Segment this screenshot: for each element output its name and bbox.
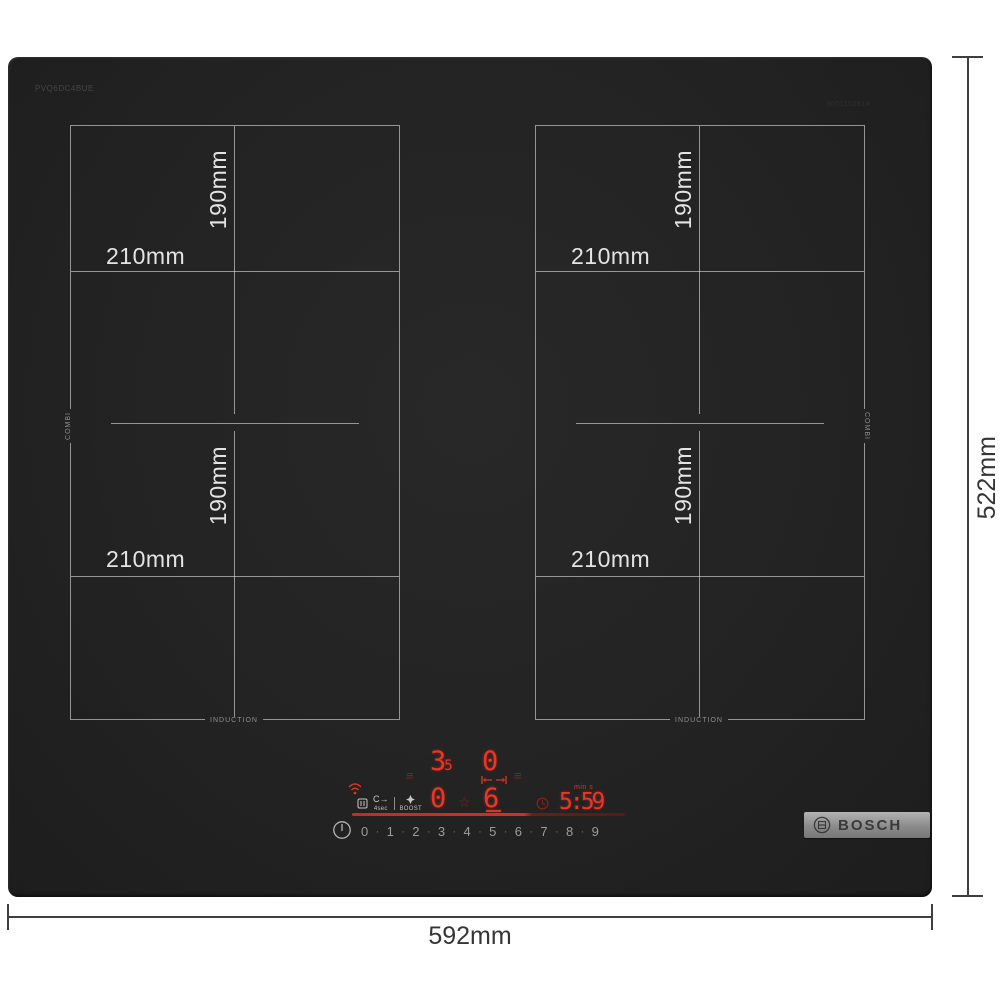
power-level-6: 6 <box>515 824 522 839</box>
panel-function-icons: C→ 4sec BOOST <box>357 795 422 812</box>
zone-divider-line <box>699 126 700 414</box>
induction-label: INDUCTION <box>205 717 263 724</box>
hob-surface: PVQ6DC4BUE 9001153814 210mm 190mm 210mm … <box>8 57 932 897</box>
power-level-separator: · <box>581 826 585 838</box>
power-level-2: 2 <box>412 824 419 839</box>
power-level-separator: · <box>529 826 533 838</box>
power-slider-bar <box>352 813 625 816</box>
led-digit: 3 <box>430 746 444 777</box>
power-level-8: 8 <box>566 824 573 839</box>
width-dimension-label: 592mm <box>8 922 932 951</box>
combi-label: COMBI <box>863 409 870 443</box>
product-dimension-diagram: PVQ6DC4BUE 9001153814 210mm 190mm 210mm … <box>0 0 1000 1000</box>
dimension-cap <box>952 56 983 58</box>
zone-width-label: 210mm <box>106 546 185 573</box>
cooking-zone-right: 210mm 190mm 210mm 190mm COMBI INDUCTION <box>535 125 865 720</box>
power-level-display-rear-right: 0 <box>482 748 496 775</box>
power-level-separator: · <box>478 826 482 838</box>
zone-middle-line <box>576 423 824 424</box>
hold-label: 4sec <box>374 806 388 812</box>
hold-function: C→ 4sec <box>373 795 389 812</box>
power-icon <box>332 820 352 840</box>
power-level-separator: · <box>376 826 380 838</box>
power-level-scale: 0·1·2·3·4·5·6·7·8·9 <box>361 824 599 839</box>
power-level-separator: · <box>452 826 456 838</box>
favourite-star-icon: ☆ <box>458 795 471 809</box>
menu-lines-icon: ≡ <box>514 769 521 782</box>
selected-zone-indicator <box>486 810 501 812</box>
zone-height-label: 190mm <box>205 150 232 229</box>
height-dimension-line <box>967 57 969 897</box>
power-level-3: 3 <box>438 824 445 839</box>
power-level-0: 0 <box>361 824 368 839</box>
menu-lines-icon: ≡ <box>406 769 413 782</box>
power-level-7: 7 <box>540 824 547 839</box>
zone-width-label: 210mm <box>106 243 185 270</box>
zone-width-line <box>536 576 864 577</box>
power-level-9: 9 <box>592 824 599 839</box>
hold-icon: C→ <box>373 795 389 804</box>
power-level-separator: · <box>504 826 508 838</box>
boost-label: BOOST <box>400 806 423 812</box>
zone-width-line <box>71 271 399 272</box>
pan-icon <box>357 798 368 809</box>
bosch-logo-icon <box>813 816 831 834</box>
wifi-icon <box>347 782 363 795</box>
icon-divider <box>394 797 395 810</box>
zone-width-line <box>536 271 864 272</box>
part-number-text: 9001153814 <box>827 101 870 108</box>
bosch-badge: BOSCH <box>804 812 930 838</box>
combi-label: COMBI <box>65 409 72 443</box>
timer-display: 5:59 <box>559 791 602 814</box>
zone-divider-line <box>234 126 235 414</box>
boost-icon <box>406 795 415 804</box>
power-level-1: 1 <box>387 824 394 839</box>
zone-middle-line <box>111 423 359 424</box>
zone-width-line <box>71 576 399 577</box>
clock-icon <box>536 797 549 810</box>
zone-height-label: 190mm <box>205 446 232 525</box>
dimension-cap <box>952 895 983 897</box>
induction-label: INDUCTION <box>670 717 728 724</box>
power-level-separator: · <box>401 826 405 838</box>
width-dimension-line <box>8 916 932 918</box>
power-level-display-bridge: 6 <box>483 785 497 812</box>
led-small-digit: 5 <box>444 758 450 774</box>
cooking-zone-left: 210mm 190mm 210mm 190mm COMBI INDUCTION <box>70 125 400 720</box>
height-dimension-label: 522mm <box>973 436 1000 519</box>
power-level-separator: · <box>427 826 431 838</box>
power-level-display-rear: 35 <box>430 748 451 775</box>
power-level-display-front: 0 <box>430 785 444 812</box>
model-code-text: PVQ6DC4BUE <box>35 84 94 93</box>
zone-height-label: 190mm <box>670 446 697 525</box>
power-level-5: 5 <box>489 824 496 839</box>
power-level-4: 4 <box>464 824 471 839</box>
boost-function: BOOST <box>400 795 423 812</box>
power-level-separator: · <box>555 826 559 838</box>
zone-width-label: 210mm <box>571 243 650 270</box>
zone-width-label: 210mm <box>571 546 650 573</box>
bosch-wordmark: BOSCH <box>838 817 902 834</box>
zone-height-label: 190mm <box>670 150 697 229</box>
